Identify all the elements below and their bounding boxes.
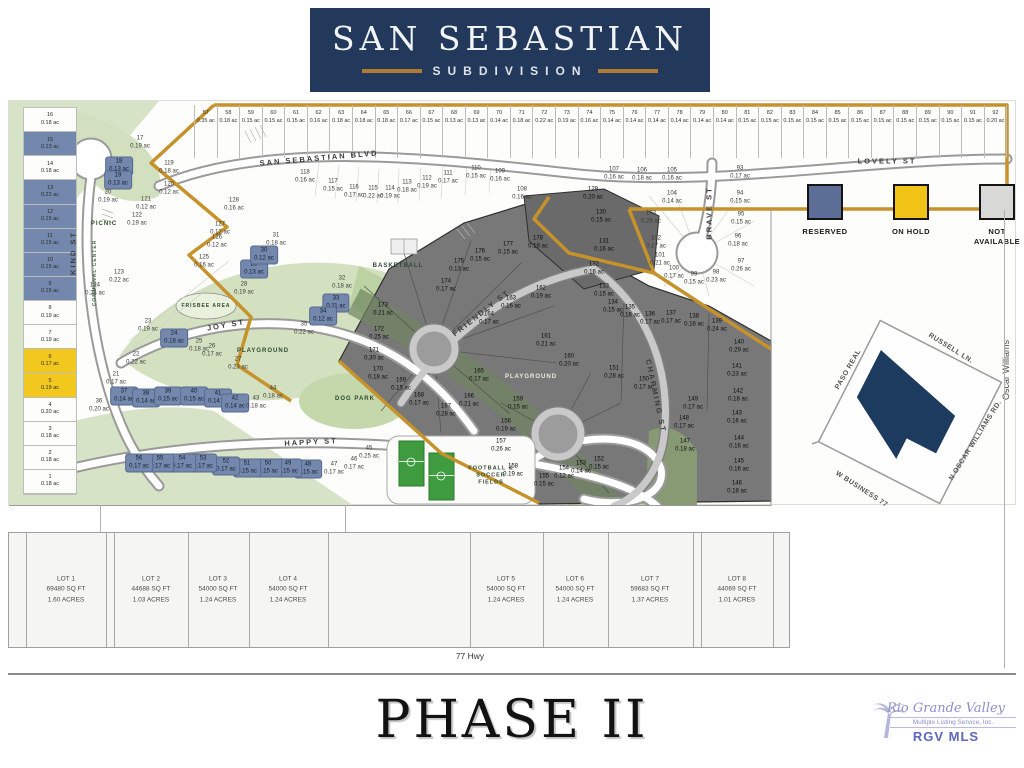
commercial-lot-label: LOT 244688 SQ FT1.03 ACRES: [131, 574, 170, 605]
map-lot-label: 960.18 ac: [728, 234, 748, 249]
map-lot-label: 470.17 ac: [324, 462, 344, 477]
map-lot-label: 1520.15 ac: [589, 457, 609, 472]
map-lot-label: 980.23 ac: [706, 270, 726, 285]
map-lot-label: 300.12 ac: [251, 247, 277, 264]
commercial-lot-strip: LOT 169480 SQ FT1.60 ACRESLOT 244688 SQ …: [8, 532, 790, 648]
legend-swatch: [807, 184, 843, 220]
subdivision-subtitle: SUBDIVISION: [432, 64, 587, 78]
map-lot-label: 560.17 ac: [126, 455, 152, 472]
map-lot-label: 1540.12 ac: [554, 466, 574, 481]
map-lot-label: 230.19 ac: [138, 319, 158, 334]
map-lot-label: 1330.15 ac: [594, 284, 614, 299]
strip-divider: [608, 533, 609, 647]
map-lot-label: 1010.21 ac: [650, 253, 670, 268]
amenity-label-football-soccer-fields: FOOTBALL & SOCCER FIELDS: [468, 465, 514, 486]
map-lot-label: 220.22 ac: [126, 352, 146, 367]
commercial-lot-label: LOT 454000 SQ FT1.24 ACRES: [268, 574, 307, 605]
map-lot-label: 340.12 ac: [310, 308, 336, 325]
commercial-lot-label: LOT 554000 SQ FT1.24 ACRES: [486, 574, 525, 605]
map-legend: RESERVEDON HOLDNOT AVAILABLE: [796, 184, 1024, 247]
map-lot-label: 1000.17 ac: [664, 266, 684, 281]
legend-item: RESERVED: [796, 184, 854, 247]
map-lot-label: 1360.17 ac: [640, 312, 660, 327]
commercial-lot-label: LOT 169480 SQ FT1.60 ACRES: [46, 574, 85, 605]
map-lot-label: 1380.16 ac: [684, 314, 704, 329]
map-lot-label: 950.15 ac: [731, 212, 751, 227]
map-lot-label: 1080.16 ac: [512, 187, 532, 202]
map-lot-label: 990.15 ac: [684, 272, 704, 287]
strip-divider: [470, 533, 471, 647]
map-lot-label: 1730.21 ac: [373, 303, 393, 318]
map-lot-label: 260.17 ac: [202, 344, 222, 359]
strip-connector-left: [100, 505, 101, 533]
map-lot-label: 1410.23 ac: [727, 364, 747, 379]
subdivision-title: SAN SEBASTIAN: [332, 22, 688, 55]
legend-item: NOT AVAILABLE: [968, 184, 1024, 247]
map-lot-label: 1170.15 ac: [323, 179, 343, 194]
map-lot-label: 350.22 ac: [294, 322, 314, 337]
map-lot-label: 1030.29 ac: [641, 211, 661, 226]
legend-label: NOT AVAILABLE: [968, 227, 1024, 247]
oscar-williams-edge-label: Oscar Williams: [1001, 340, 1011, 400]
strip-divider: [543, 533, 544, 647]
map-lot-label: 1260.12 ac: [207, 235, 227, 250]
legend-swatch: [979, 184, 1015, 220]
highway-line: [8, 673, 1016, 675]
map-lot-label: 170.19 ac: [130, 136, 150, 151]
strip-divider: [106, 533, 107, 647]
map-lot-label: 240.18 ac: [161, 330, 187, 347]
map-lot-label: 420.14 ac: [222, 395, 248, 412]
gold-rule-right: [598, 69, 658, 73]
map-lot-label: 1560.19 ac: [496, 419, 516, 434]
street-label-kind-st: KIND ST: [69, 231, 78, 275]
map-lot-label: 1690.15 ac: [391, 378, 411, 393]
map-lot-label: 1490.17 ac: [683, 397, 703, 412]
map-lot-label: 1480.17 ac: [674, 416, 694, 431]
map-lot-label: 1700.18 ac: [368, 367, 388, 382]
map-lot-label: 1350.16 ac: [620, 305, 640, 320]
map-lot-label: 1600.20 ac: [559, 354, 579, 369]
commercial-lot-label: LOT 654000 SQ FT1.24 ACRES: [555, 574, 594, 605]
map-lot-label: 1420.18 ac: [728, 389, 748, 404]
amenity-label-dog-park: DOG PARK: [335, 396, 375, 402]
strip-divider: [701, 533, 702, 647]
map-lot-label: 270.23 ac: [228, 357, 248, 372]
commercial-lot-label: LOT 354000 SQ FT1.24 ACRES: [198, 574, 237, 605]
strip-divider: [249, 533, 250, 647]
map-lot-label: 1430.16 ac: [727, 411, 747, 426]
street-label-lovely-st: LOVELY ST: [858, 157, 917, 166]
map-lot-label: 1570.26 ac: [491, 439, 511, 454]
map-lot-label: 1550.15 ac: [534, 474, 554, 489]
map-lot-label: 1450.16 ac: [729, 459, 749, 474]
map-lot-label: 1220.19 ac: [127, 213, 147, 228]
map-lot-label: 1390.24 ac: [707, 319, 727, 334]
map-lot-label: 1440.16 ac: [729, 436, 749, 451]
strip-divider: [773, 533, 774, 647]
legend-swatch: [893, 184, 929, 220]
amenity-label-picnic: PICNIC: [91, 221, 117, 227]
map-lot-label: 1070.16 ac: [604, 167, 624, 182]
strip-divider: [328, 533, 329, 647]
map-lot-label: 1460.18 ac: [727, 481, 747, 496]
map-lot-label: 310.18 ac: [266, 233, 286, 248]
amenity-label-frisbee-area: FRISBEE AREA: [181, 303, 230, 309]
map-lot-label: 1180.16 ac: [295, 170, 315, 185]
map-lot-label: 280.19 ac: [234, 282, 254, 297]
phase-title: PHASE II: [0, 690, 1024, 750]
strip-divider: [26, 533, 27, 647]
map-lot-label: 1660.21 ac: [459, 394, 479, 409]
street-label-brave-st: BRAVE ST: [705, 186, 714, 239]
highway-label: 77 Hwy: [420, 651, 520, 661]
map-lot-label: 1320.16 ac: [584, 262, 604, 277]
map-lot-label: 1590.15 ac: [508, 397, 528, 412]
legend-item: ON HOLD: [882, 184, 940, 247]
map-lot-label: 1680.17 ac: [409, 393, 429, 408]
map-lot-label: 1650.17 ac: [469, 369, 489, 384]
strip-connector-right: [345, 505, 346, 533]
map-lot-label: 320.18 ac: [332, 276, 352, 291]
map-lot-label: 210.17 ac: [106, 372, 126, 387]
map-lot-label: 1200.12 ac: [159, 182, 179, 197]
map-lot-label: 1290.20 ac: [583, 187, 603, 202]
map-lot-label: 1470.18 ac: [675, 439, 695, 454]
map-lot-label: 1720.25 ac: [369, 327, 389, 342]
map-lot-label: 1120.19 ac: [417, 176, 437, 191]
map-lot-label: 1510.28 ac: [604, 366, 624, 381]
map-lot-label: 1370.17 ac: [661, 311, 681, 326]
gold-rule-left: [362, 69, 422, 73]
map-lot-label: 400.15 ac: [181, 388, 207, 405]
map-lot-label: 1770.15 ac: [498, 242, 518, 257]
map-lot-label: 1750.13 ac: [449, 259, 469, 274]
commercial-lot-label: LOT 759683 SQ FT1.37 ACRES: [630, 574, 669, 605]
strip-divider: [114, 533, 115, 647]
map-lot-label: 520.17 ac: [213, 458, 239, 475]
map-lot-label: 200.19 ac: [98, 190, 118, 205]
map-lot-label: 1110.17 ac: [438, 171, 458, 186]
subdivision-banner: SAN SEBASTIAN SUBDIVISION: [310, 8, 710, 92]
map-lot-label: 360.20 ac: [89, 399, 109, 414]
map-lot-label: 1250.16 ac: [194, 255, 214, 270]
map-lot-label: 970.26 ac: [731, 259, 751, 274]
map-lot-label: 930.17 ac: [730, 166, 750, 181]
map-lot-label: 1610.21 ac: [536, 334, 556, 349]
map-lot-label: 1160.17 ac: [344, 185, 364, 200]
legend-label: ON HOLD: [892, 227, 930, 237]
map-lot-label: 1050.16 ac: [662, 168, 682, 183]
map-lot-label: 1060.18 ac: [632, 168, 652, 183]
map-lot-label: 190.13 ac: [105, 172, 131, 189]
amenity-label-basketball: BASKETBALL: [373, 263, 424, 269]
map-lot-label: 1090.16 ac: [490, 169, 510, 184]
subdivision-subtitle-row: SUBDIVISION: [362, 64, 657, 78]
map-lot-label: 1270.12 ac: [210, 222, 230, 237]
map-lot-label: 460.17 ac: [344, 457, 364, 472]
map-lot-label: 390.15 ac: [155, 388, 181, 405]
map-lot-label: 1740.17 ac: [436, 279, 456, 294]
map-lot-label: 1210.12 ac: [136, 197, 156, 212]
map-lot-label: 1310.16 ac: [594, 239, 614, 254]
legend-label: RESERVED: [802, 227, 847, 237]
map-lot-label: 1020.17 ac: [646, 236, 666, 251]
street-label-communal-center: COMMUNAL CENTER: [92, 240, 98, 307]
map-lot-label: 1130.18 ac: [397, 180, 417, 195]
commercial-lot-label: LOT 844069 SQ FT1.01 ACRES: [717, 574, 756, 605]
plat-map-page: SAN SEBASTIAN SUBDIVISION: [0, 0, 1024, 768]
map-lot-label: 1280.16 ac: [224, 198, 244, 213]
watermark-service-line: Multiple Listing Service, Inc.: [890, 717, 1016, 728]
rgv-mls-watermark: Rio Grande Valley Multiple Listing Servi…: [876, 702, 1016, 744]
palm-tree-icon: [872, 700, 906, 740]
map-lot-label: 1190.18 ac: [159, 161, 179, 176]
map-lot-label: 1230.22 ac: [109, 270, 129, 285]
strip-divider: [693, 533, 694, 647]
map-lot-label: 1300.15 ac: [591, 210, 611, 225]
map-lot-label: 1530.14 ac: [571, 461, 591, 476]
map-lot-label: 1760.15 ac: [470, 249, 490, 264]
amenity-label-playground-center: PLAYGROUND: [505, 374, 557, 380]
map-lot-label: 940.15 ac: [730, 191, 750, 206]
map-lot-label: 1780.19 ac: [528, 236, 548, 251]
map-lot-label: 1670.28 ac: [436, 404, 456, 419]
map-lot-label: 440.18 ac: [263, 386, 283, 401]
map-lot-label: 1400.29 ac: [729, 340, 749, 355]
map-lot-label: 1040.14 ac: [662, 191, 682, 206]
map-lot-label: 1100.15 ac: [466, 166, 486, 181]
right-edge-line: [1004, 210, 1005, 668]
strip-divider: [188, 533, 189, 647]
map-lot-label: 1710.30 ac: [364, 348, 384, 363]
map-lot-label: 540.17 ac: [169, 455, 195, 472]
amenity-label-playground-west: PLAYGROUND: [237, 348, 289, 354]
map-lot-label: 1620.19 ac: [531, 286, 551, 301]
